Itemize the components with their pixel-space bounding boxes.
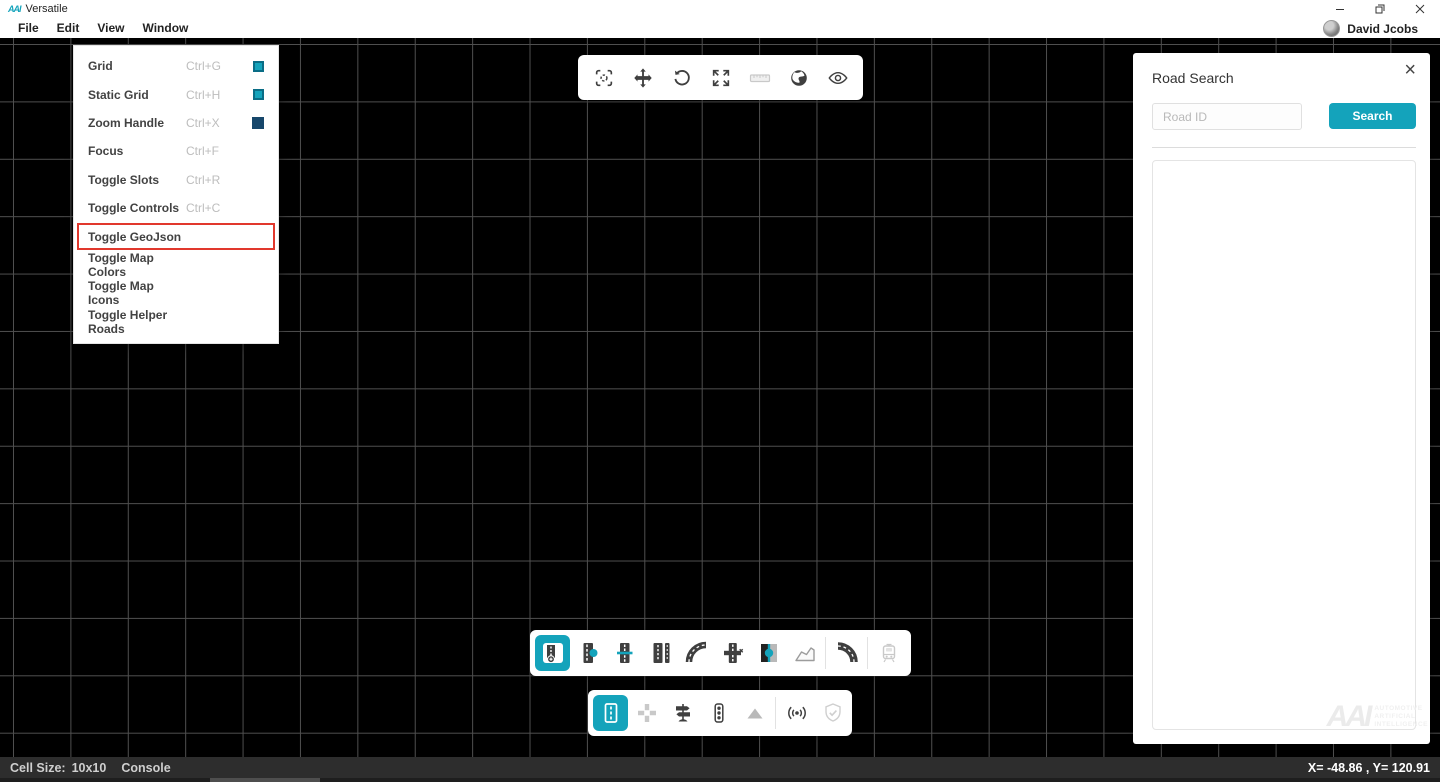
app-logo-icon: AAI [8,4,21,14]
menu-item-grid[interactable]: Grid Ctrl+G [74,52,278,80]
road-split-icon [613,641,637,665]
traffic-light-button[interactable] [701,695,736,731]
minimize-button[interactable] [1320,0,1360,17]
toolbar-divider [825,637,826,669]
search-results-area [1152,160,1416,730]
menu-item-shortcut: Ctrl+C [186,201,264,215]
menu-edit[interactable]: Edit [48,21,89,35]
menu-view[interactable]: View [88,21,133,35]
terrain-mountain-icon [743,701,767,725]
menu-item-toggle-geojson[interactable]: Toggle GeoJson [74,222,278,250]
ruler-button[interactable] [744,62,776,94]
curved-road-bold-button[interactable] [829,635,864,671]
shield-check-icon [821,701,845,725]
shield-check-button[interactable] [815,695,850,731]
checkbox-indicator [253,61,264,72]
view-menu-dropdown: Grid Ctrl+G Static Grid Ctrl+H Zoom Hand… [73,45,279,344]
curved-road-bold-icon [835,641,859,665]
menu-item-label: Toggle Map Icons [88,279,186,307]
menu-item-label: Focus [88,144,186,158]
tram-icon [877,641,901,665]
focus-center-icon [593,67,615,89]
restore-icon [1375,4,1385,14]
move-icon [632,67,654,89]
titlebar: AAI Versatile [0,0,1440,17]
search-button[interactable]: Search [1329,103,1416,129]
object-toolbar [588,690,852,736]
close-icon [1415,4,1425,14]
view-toolbar [578,55,863,100]
menu-item-shortcut: Ctrl+R [186,173,264,187]
panel-title: Road Search [1152,70,1234,86]
menu-item-label: Toggle Controls [88,201,186,215]
focus-center-button[interactable] [588,62,620,94]
toolbar-divider [867,637,868,669]
menu-item-label: Toggle Helper Roads [88,308,186,336]
cell-size-value: 10x10 [72,761,107,775]
road-object-button[interactable] [593,695,628,731]
add-road-button[interactable] [535,635,570,671]
tram-button[interactable] [871,635,906,671]
panel-divider [1152,147,1416,148]
window-controls [1320,0,1440,17]
menu-item-toggle-slots[interactable]: Toggle Slots Ctrl+R [74,166,278,194]
globe-icon [788,67,810,89]
avatar [1323,20,1340,37]
user-chip[interactable]: David Jcobs [1323,20,1418,37]
menu-item-shortcut: Ctrl+G [186,59,253,73]
signal-button[interactable] [779,695,814,731]
close-window-button[interactable] [1400,0,1440,17]
road-merge-icon [757,641,781,665]
intersection-icon [635,701,659,725]
toolbar-divider [775,697,776,729]
menubar: File Edit View Window [0,17,1440,38]
road-cross-delete-button[interactable] [715,635,750,671]
menu-item-shortcut: Ctrl+F [186,144,264,158]
menu-window[interactable]: Window [133,21,197,35]
road-lanes-button[interactable] [643,635,678,671]
road-connector-icon [577,641,601,665]
ruler-icon [748,66,772,90]
app-title: Versatile [26,3,68,15]
menu-item-toggle-map-colors[interactable]: Toggle Map Colors [74,251,278,279]
road-cross-delete-icon [721,641,745,665]
add-road-icon [541,641,565,665]
checkbox-indicator [253,89,264,100]
expand-button[interactable] [705,62,737,94]
road-connector-button[interactable] [571,635,606,671]
road-search-panel: Road Search × Search AAI AUTOMOTIVE ARTI… [1133,53,1430,744]
cursor-coordinates: X= -48.86 , Y= 120.91 [1308,761,1430,775]
globe-button[interactable] [783,62,815,94]
intersection-button[interactable] [629,695,664,731]
expand-icon [710,67,732,89]
statusbar: Cell Size: 10x10 Console X= -48.86 , Y= … [0,757,1440,778]
signpost-icon [671,701,695,725]
menu-item-label: Grid [88,59,186,73]
area-polygon-button[interactable] [787,635,822,671]
menu-item-label: Toggle Slots [88,173,186,187]
restore-button[interactable] [1360,0,1400,17]
signal-broadcast-icon [785,701,809,725]
visibility-button[interactable] [822,62,854,94]
menu-item-toggle-helper-roads[interactable]: Toggle Helper Roads [74,308,278,336]
panel-close-button[interactable]: × [1404,60,1416,80]
curved-road-icon [685,641,709,665]
menu-file[interactable]: File [9,21,48,35]
menu-item-toggle-controls[interactable]: Toggle Controls Ctrl+C [74,194,278,222]
menu-item-toggle-map-icons[interactable]: Toggle Map Icons [74,279,278,307]
menu-item-static-grid[interactable]: Static Grid Ctrl+H [74,80,278,108]
move-button[interactable] [627,62,659,94]
menu-item-label: Toggle GeoJson [88,230,186,244]
signpost-button[interactable] [665,695,700,731]
road-merge-button[interactable] [751,635,786,671]
road-icon [599,701,623,725]
menu-item-shortcut: Ctrl+X [186,116,252,130]
menu-item-zoom-handle[interactable]: Zoom Handle Ctrl+X [74,109,278,137]
checkbox-indicator [252,117,264,129]
scrollbar-thumb[interactable] [210,778,320,782]
horizontal-scrollbar[interactable] [0,778,1440,782]
area-polygon-icon [793,641,817,665]
road-id-input[interactable] [1152,103,1302,130]
curved-road-button[interactable] [679,635,714,671]
menu-item-label: Toggle Map Colors [88,251,186,279]
menu-item-label: Zoom Handle [88,116,186,130]
road-toolbar [530,630,911,676]
visibility-eye-icon [827,67,849,89]
console-toggle[interactable]: Console [121,761,170,775]
rotate-icon [671,67,693,89]
user-name: David Jcobs [1347,22,1418,36]
road-split-button[interactable] [607,635,642,671]
menu-item-focus[interactable]: Focus Ctrl+F [74,137,278,165]
terrain-button[interactable] [737,695,772,731]
menu-item-label: Static Grid [88,88,186,102]
road-lanes-icon [649,641,673,665]
traffic-light-icon [707,701,731,725]
rotate-button[interactable] [666,62,698,94]
menu-item-shortcut: Ctrl+H [186,88,253,102]
cell-size-label: Cell Size: [10,761,66,775]
minimize-icon [1335,4,1345,14]
